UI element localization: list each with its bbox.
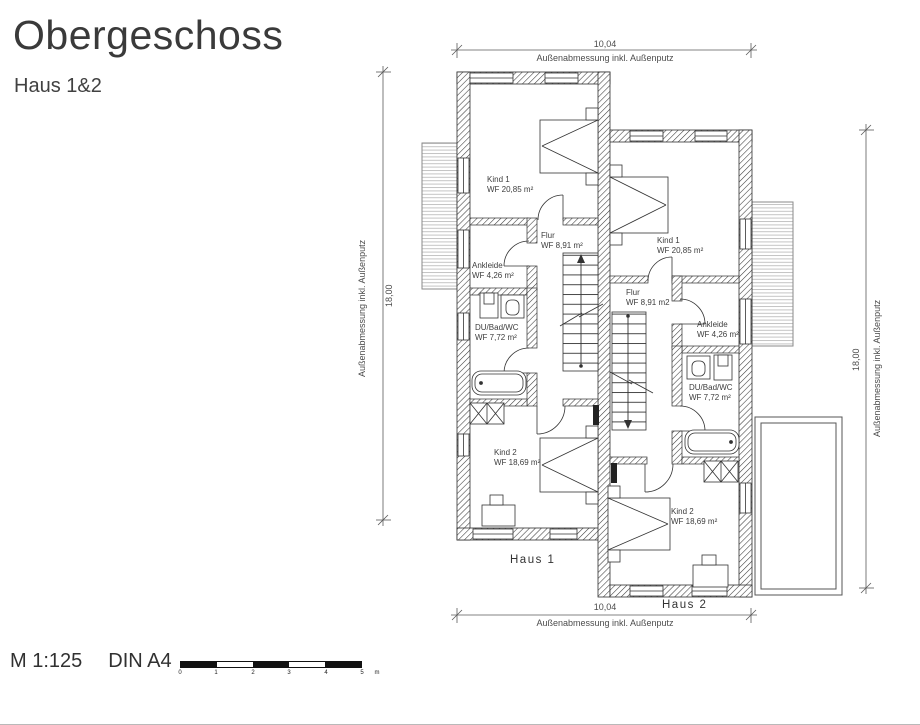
room-label-haus2-bad: DU/Bad/WC WF 7,72 m²	[689, 383, 733, 403]
house-label-haus1: Haus 1	[510, 554, 555, 566]
scale-bar-segment	[253, 662, 289, 667]
room-area: WF 20,85 m²	[487, 185, 533, 195]
room-label-haus1-kind2: Kind 2 WF 18,69 m²	[494, 448, 540, 468]
staircase-haus1	[560, 253, 603, 371]
room-area: WF 4,26 m²	[697, 330, 739, 340]
dresser-haus1	[482, 495, 515, 526]
dim-bottom-value: 10,04	[540, 602, 670, 612]
scale-bar-segment	[181, 662, 217, 667]
room-label-haus2-flur: Flur WF 8,91 m2	[626, 288, 670, 308]
duct-haus1	[593, 405, 599, 425]
room-name: Flur	[541, 231, 583, 241]
room-area: WF 18,69 m²	[671, 517, 717, 527]
room-name: Flur	[626, 288, 670, 298]
room-area: WF 18,69 m²	[494, 458, 540, 468]
duct-haus2	[611, 463, 617, 483]
bed-haus1-kind2	[540, 426, 598, 504]
balcony-left	[422, 143, 457, 289]
room-name: Kind 1	[657, 236, 703, 246]
bed-haus1-kind1	[540, 108, 598, 185]
scale-tick-3: 3	[284, 670, 294, 676]
room-name: Kind 2	[671, 507, 717, 517]
scale-note: M 1:125DIN A4	[10, 650, 198, 673]
room-label-haus2-ankleide: Ankleide WF 4,26 m²	[697, 320, 739, 340]
room-label-haus1-bad: DU/Bad/WC WF 7,72 m²	[475, 323, 519, 343]
room-label-haus2-kind1: Kind 1 WF 20,85 m²	[657, 236, 703, 256]
floor-plan-drawing	[0, 0, 920, 724]
dim-left-label: Außenabmessung inkl. Außenputz	[357, 228, 367, 388]
room-area: WF 7,72 m²	[689, 393, 733, 403]
room-label-haus2-kind2: Kind 2 WF 18,69 m²	[671, 507, 717, 527]
room-label-haus1-ankleide: Ankleide WF 4,26 m²	[472, 261, 514, 281]
room-label-haus1-kind1: Kind 1 WF 20,85 m²	[487, 175, 533, 195]
room-label-haus1-flur: Flur WF 8,91 m²	[541, 231, 583, 251]
room-name: Kind 1	[487, 175, 533, 185]
scale-unit: m	[372, 670, 382, 676]
room-area: WF 20,85 m²	[657, 246, 703, 256]
scale-tick-5: 5	[357, 670, 367, 676]
room-name: DU/Bad/WC	[475, 323, 519, 333]
room-area: WF 7,72 m²	[475, 333, 519, 343]
scale-bar-segment	[325, 662, 361, 667]
wardrobe-haus2	[704, 461, 738, 482]
room-area: WF 8,91 m2	[626, 298, 670, 308]
scale-tick-2: 2	[248, 670, 258, 676]
wardrobe-haus1	[470, 403, 504, 424]
scale-value: M 1:125	[10, 650, 82, 672]
dim-right-value: 18,00	[851, 330, 861, 390]
dresser-haus2	[693, 555, 728, 587]
scale-tick-4: 4	[321, 670, 331, 676]
room-name: Ankleide	[697, 320, 739, 330]
house-label-haus2: Haus 2	[662, 599, 707, 611]
dim-left-value: 18,00	[384, 266, 394, 326]
dim-top-label: Außenabmessung inkl. Außenputz	[480, 53, 730, 63]
room-area: WF 8,91 m²	[541, 241, 583, 251]
scale-bar-segment	[217, 662, 253, 667]
terrace-bottom-right	[755, 417, 842, 595]
bathroom-haus2	[685, 355, 739, 454]
floor-plan-page: Obergeschoss Haus 1&2	[0, 0, 920, 725]
scale-tick-1: 1	[211, 670, 221, 676]
staircase-haus2	[610, 312, 653, 430]
room-name: Ankleide	[472, 261, 514, 271]
dim-bottom-label: Außenabmessung inkl. Außenputz	[480, 618, 730, 628]
dim-right-label: Außenabmessung inkl. Außenputz	[872, 288, 882, 448]
scale-bar-segment	[289, 662, 325, 667]
bed-haus2-kind1	[610, 165, 668, 245]
bathroom-haus1	[472, 293, 526, 395]
scale-tick-0: 0	[175, 670, 185, 676]
paper-format: DIN A4	[108, 650, 171, 672]
dim-top-value: 10,04	[540, 39, 670, 49]
room-name: Kind 2	[494, 448, 540, 458]
room-area: WF 4,26 m²	[472, 271, 514, 281]
balcony-right	[752, 202, 793, 346]
scale-bar	[180, 661, 362, 668]
room-name: DU/Bad/WC	[689, 383, 733, 393]
bed-haus2-kind2	[608, 486, 670, 562]
